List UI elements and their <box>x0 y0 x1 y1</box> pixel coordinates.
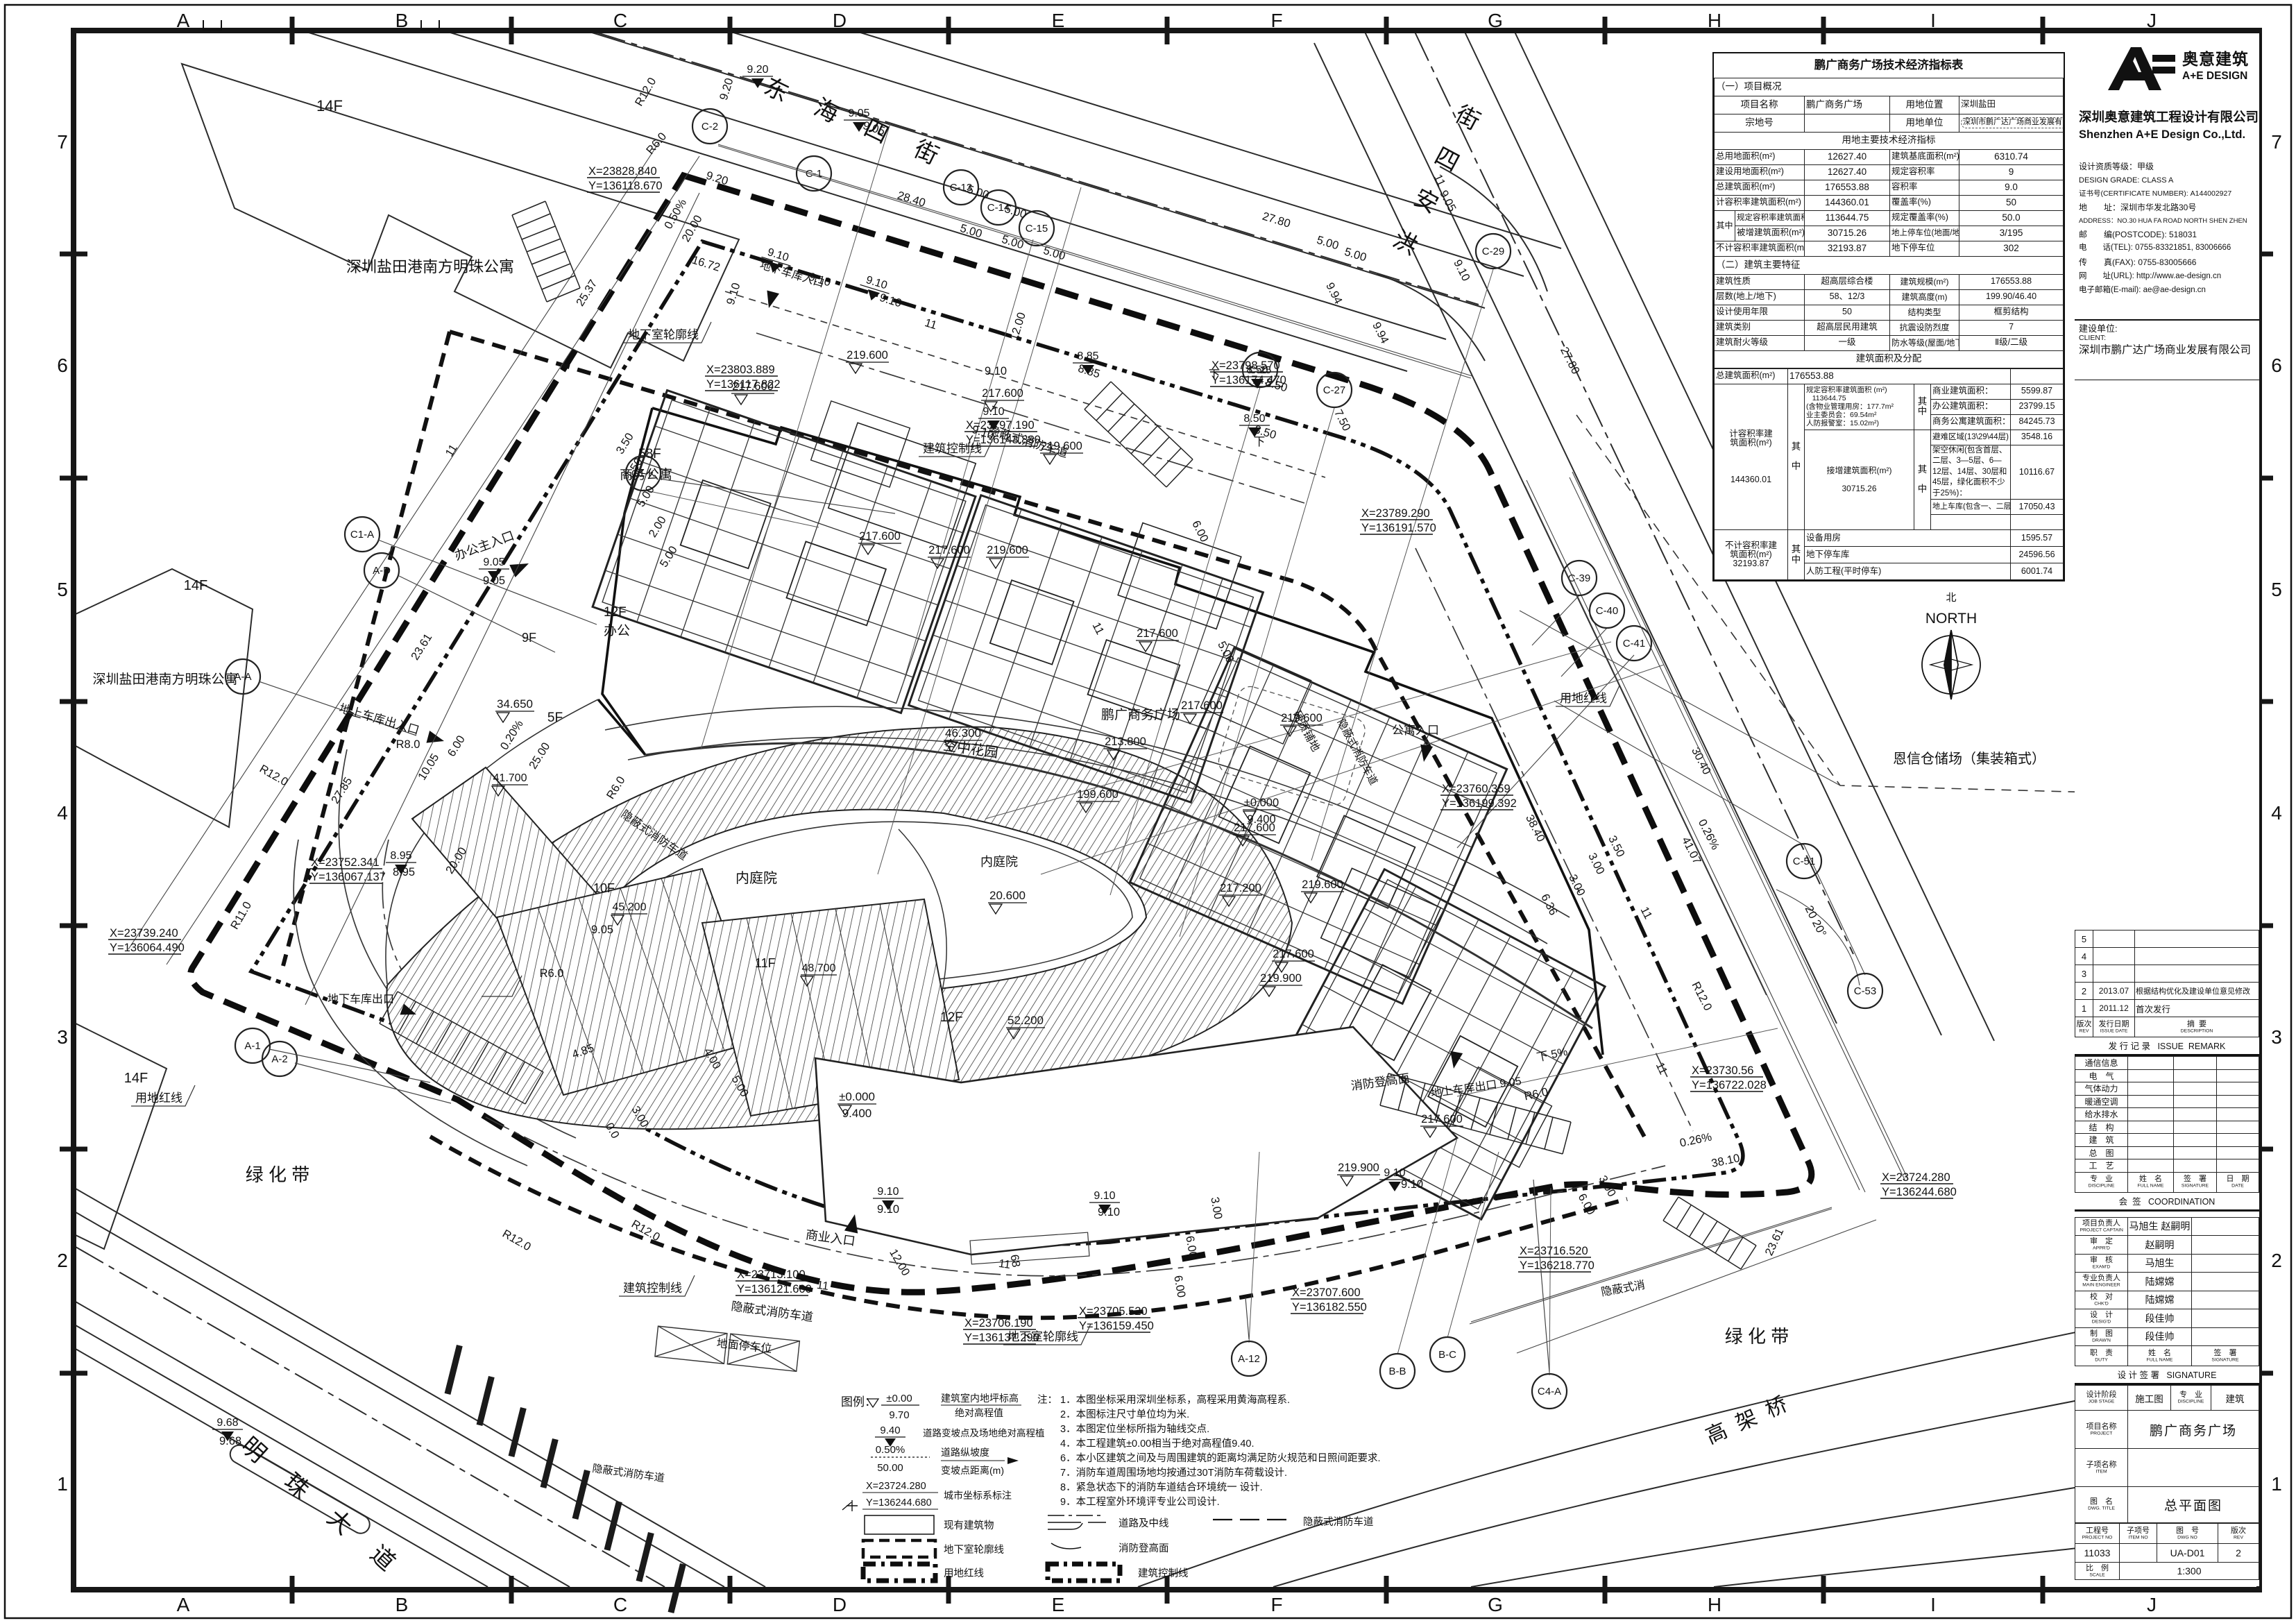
svg-text:C-53: C-53 <box>1854 985 1877 997</box>
svg-text:9.10: 9.10 <box>1094 1190 1115 1202</box>
svg-text:X=23713.100: X=23713.100 <box>737 1268 806 1281</box>
svg-text:14F: 14F <box>124 1071 148 1086</box>
svg-text:绝对高程值: 绝对高程值 <box>955 1407 1003 1418</box>
svg-text:217.600: 217.600 <box>1273 948 1314 960</box>
svg-text:9.400: 9.400 <box>1247 813 1275 826</box>
svg-text:9.05: 9.05 <box>848 108 869 119</box>
svg-text:C-27: C-27 <box>1323 384 1346 396</box>
svg-text:Y=136199.392: Y=136199.392 <box>1442 797 1517 810</box>
svg-text:6．本小区建筑之间及与周围建筑的距离均满足防火规范和日照间距: 6．本小区建筑之间及与周围建筑的距离均满足防火规范和日照间距要求. <box>1060 1452 1381 1464</box>
svg-text:2.00: 2.00 <box>647 514 669 540</box>
svg-text:6.00: 6.00 <box>1171 1275 1187 1299</box>
svg-text:219.900: 219.900 <box>1338 1162 1379 1174</box>
svg-text:25.00: 25.00 <box>527 740 552 772</box>
svg-text:I: I <box>1930 10 1936 31</box>
svg-text:1: 1 <box>57 1473 68 1495</box>
svg-text:6.00: 6.00 <box>445 733 468 759</box>
svg-text:R12.0: R12.0 <box>633 76 659 108</box>
svg-text:C-29: C-29 <box>1482 246 1505 257</box>
svg-text:3.00: 3.00 <box>1585 851 1607 876</box>
svg-text:34.650: 34.650 <box>497 697 533 711</box>
svg-text:R12.0: R12.0 <box>629 1218 662 1244</box>
svg-text:6: 6 <box>2271 355 2282 376</box>
svg-text:9.400: 9.400 <box>842 1107 872 1120</box>
svg-text:道路纵坡度: 道路纵坡度 <box>941 1447 989 1458</box>
svg-text:9F: 9F <box>522 631 536 645</box>
svg-text:建筑控制线: 建筑控制线 <box>1138 1567 1189 1579</box>
svg-text:隐蔽式消: 隐蔽式消 <box>1600 1279 1646 1299</box>
svg-text:9.05: 9.05 <box>1437 188 1459 214</box>
svg-text:8．紧急状态下的消防车道结合环境统一 设计.: 8．紧急状态下的消防车道结合环境统一 设计. <box>1060 1481 1263 1493</box>
svg-text:11: 11 <box>816 1279 829 1293</box>
svg-text:消防登高面: 消防登高面 <box>1119 1543 1169 1554</box>
svg-text:Y=136064.490: Y=136064.490 <box>110 942 185 954</box>
svg-text:45.200: 45.200 <box>613 901 647 913</box>
svg-text:R6.0: R6.0 <box>644 130 669 157</box>
svg-text:28.40: 28.40 <box>896 189 927 210</box>
svg-text:X=23716.520: X=23716.520 <box>1520 1245 1588 1257</box>
svg-text:内庭院: 内庭院 <box>980 855 1018 869</box>
svg-text:G: G <box>1488 1594 1503 1615</box>
svg-text:3．本图定位坐标所指为轴线交点.: 3．本图定位坐标所指为轴线交点. <box>1060 1422 1209 1435</box>
svg-text:6.00: 6.00 <box>1576 1191 1598 1217</box>
svg-text:地下车库出口: 地下车库出口 <box>328 993 394 1005</box>
svg-text:9.10: 9.10 <box>1451 257 1472 283</box>
svg-text:A-2: A-2 <box>271 1053 287 1065</box>
svg-text:下 5%: 下 5% <box>1536 1046 1569 1064</box>
svg-text:X=23803.889: X=23803.889 <box>706 364 775 376</box>
svg-text:X=23752.341: X=23752.341 <box>311 856 380 869</box>
svg-text:41.700: 41.700 <box>493 772 527 784</box>
svg-text:地下室轮廓线: 地下室轮廓线 <box>628 328 699 341</box>
svg-text:恩信仓储场（集装箱式）: 恩信仓储场（集装箱式） <box>1893 751 2046 767</box>
svg-text:46.300: 46.300 <box>945 726 981 740</box>
svg-text:F: F <box>1270 1594 1282 1615</box>
svg-text:11F: 11F <box>755 956 776 970</box>
svg-text:41.07: 41.07 <box>1679 835 1703 866</box>
svg-text:Y=136191.570: Y=136191.570 <box>1361 522 1436 534</box>
svg-text:9．本工程室外环境评专业公司设计.: 9．本工程室外环境评专业公司设计. <box>1060 1495 1220 1508</box>
svg-text:14F: 14F <box>316 97 343 114</box>
svg-text:±0.00: ±0.00 <box>886 1393 912 1404</box>
svg-text:R6.0: R6.0 <box>540 967 564 980</box>
svg-text:217.200: 217.200 <box>1220 882 1261 894</box>
svg-text:0.26%: 0.26% <box>1678 1130 1713 1149</box>
svg-text:X=23705.520: X=23705.520 <box>1079 1305 1148 1318</box>
svg-text:Y=136218.770: Y=136218.770 <box>1520 1259 1595 1272</box>
svg-text:桥: 桥 <box>1762 1393 1791 1422</box>
svg-text:C-15: C-15 <box>1026 223 1048 235</box>
svg-text:街: 街 <box>1451 101 1484 136</box>
svg-text:9.20: 9.20 <box>747 64 768 76</box>
svg-text:J: J <box>2147 1594 2157 1615</box>
svg-text:R12.0: R12.0 <box>500 1227 533 1254</box>
svg-text:四: 四 <box>1430 143 1463 178</box>
svg-text:深圳盐田港南方明珠公寓: 深圳盐田港南方明珠公寓 <box>92 672 237 687</box>
svg-text:1．本图坐标采用深圳坐标系，高程采用黄海高程系.: 1．本图坐标采用深圳坐标系，高程采用黄海高程系. <box>1060 1394 1290 1406</box>
svg-text:C-2: C-2 <box>701 121 718 133</box>
svg-text:隐蔽式消防车道: 隐蔽式消防车道 <box>591 1463 665 1484</box>
svg-text:11: 11 <box>443 442 460 459</box>
svg-text:Y=136244.680: Y=136244.680 <box>866 1497 932 1509</box>
svg-text:E: E <box>1052 10 1065 31</box>
svg-text:8.50: 8.50 <box>1243 413 1265 425</box>
svg-text:内庭院: 内庭院 <box>735 870 777 886</box>
svg-text:9.10: 9.10 <box>985 365 1007 377</box>
svg-text:公寓入口: 公寓入口 <box>1392 724 1439 737</box>
svg-text:5.00: 5.00 <box>658 544 680 570</box>
svg-text:奥意建筑: 奥意建筑 <box>2182 50 2249 68</box>
svg-text:高: 高 <box>1703 1419 1731 1448</box>
svg-text:C: C <box>613 1594 627 1615</box>
svg-text:9.10: 9.10 <box>877 1186 899 1198</box>
svg-text:变坡点距离(m): 变坡点距离(m) <box>941 1465 1004 1476</box>
svg-text:地面停车位: 地面停车位 <box>716 1337 772 1355</box>
svg-text:7．消防车道周围场地均按通过30T消防车荷载设计.: 7．消防车道周围场地均按通过30T消防车荷载设计. <box>1060 1467 1287 1479</box>
svg-text:Y=136118.670: Y=136118.670 <box>588 180 663 192</box>
svg-text:0.50%: 0.50% <box>876 1444 905 1456</box>
svg-text:217.600: 217.600 <box>1137 627 1178 640</box>
svg-text:6: 6 <box>57 355 68 376</box>
svg-text:27.85: 27.85 <box>329 775 355 806</box>
svg-text:2．本图标注尺寸单位均为米.: 2．本图标注尺寸单位均为米. <box>1060 1409 1189 1420</box>
svg-text:X=23789.290: X=23789.290 <box>1361 507 1430 520</box>
svg-text:Y=136067.137: Y=136067.137 <box>311 871 386 883</box>
svg-text:地下室轮廓线: 地下室轮廓线 <box>944 1544 1004 1556</box>
svg-text:10.05: 10.05 <box>416 751 441 783</box>
svg-text:219.900: 219.900 <box>1260 972 1302 985</box>
svg-text:洪: 洪 <box>1388 226 1422 261</box>
svg-text:绿 化 带: 绿 化 带 <box>1725 1326 1789 1347</box>
svg-text:北: 北 <box>1946 592 1956 604</box>
svg-text:219.600: 219.600 <box>847 349 888 362</box>
svg-text:现有建筑物: 现有建筑物 <box>944 1520 994 1531</box>
svg-text:217.600: 217.600 <box>928 544 970 556</box>
svg-text:3: 3 <box>2271 1026 2282 1048</box>
svg-text:217.600: 217.600 <box>1421 1113 1463 1125</box>
svg-text:隐蔽式消防车道: 隐蔽式消防车道 <box>1335 717 1379 788</box>
svg-text:C-51: C-51 <box>1793 856 1816 867</box>
svg-text:9.70: 9.70 <box>889 1409 909 1421</box>
svg-text:大: 大 <box>322 1504 357 1540</box>
svg-text:Shenzhen A+E Design Co.,Ltd.: Shenzhen A+E Design Co.,Ltd. <box>2079 128 2245 141</box>
svg-text:H: H <box>1708 1594 1721 1615</box>
svg-text:B: B <box>396 10 409 31</box>
svg-text:R6.0: R6.0 <box>604 774 628 801</box>
svg-text:Y=136182.550: Y=136182.550 <box>1292 1301 1367 1314</box>
svg-text:东: 东 <box>760 74 792 108</box>
svg-text:4．本工程建筑±0.00相当于绝对高程值9.40.: 4．本工程建筑±0.00相当于绝对高程值9.40. <box>1060 1438 1255 1450</box>
svg-text:D: D <box>833 1594 847 1615</box>
svg-text:道路变坡点及场地绝对高程植: 道路变坡点及场地绝对高程植 <box>923 1427 1045 1438</box>
svg-text:Y=136244.680: Y=136244.680 <box>1882 1186 1957 1198</box>
svg-text:7.50: 7.50 <box>1332 407 1353 433</box>
svg-text:道路及中线: 道路及中线 <box>1119 1518 1169 1529</box>
svg-text:F: F <box>1270 10 1282 31</box>
svg-text:G: G <box>1488 10 1503 31</box>
svg-text:9.10: 9.10 <box>724 282 743 307</box>
svg-text:B: B <box>396 1594 409 1615</box>
svg-text:J: J <box>2147 10 2157 31</box>
svg-text:建筑控制线: 建筑控制线 <box>623 1282 682 1295</box>
svg-text:4: 4 <box>2271 802 2282 824</box>
svg-text:9.10: 9.10 <box>1384 1167 1405 1179</box>
svg-text:鹏广商务广场: 鹏广商务广场 <box>1101 707 1180 722</box>
svg-text:X=23724.280: X=23724.280 <box>866 1481 926 1492</box>
svg-text:道: 道 <box>365 1540 400 1576</box>
svg-text:E: E <box>1052 1594 1065 1615</box>
svg-text:X=23828.840: X=23828.840 <box>588 165 657 178</box>
svg-text:9.40: 9.40 <box>880 1425 900 1436</box>
svg-text:11: 11 <box>1090 620 1107 636</box>
svg-text:199.600: 199.600 <box>1077 788 1119 801</box>
svg-text:C-40: C-40 <box>1596 605 1619 617</box>
svg-text:A-A: A-A <box>234 671 251 683</box>
svg-text:C4-A: C4-A <box>1538 1386 1561 1397</box>
svg-text:52.200: 52.200 <box>1007 1014 1044 1027</box>
svg-text:10F: 10F <box>593 881 615 895</box>
svg-text:217.600: 217.600 <box>1181 699 1223 712</box>
svg-text:X=23760.359: X=23760.359 <box>1442 783 1511 795</box>
svg-text:3: 3 <box>57 1026 68 1048</box>
svg-text:±0.000: ±0.000 <box>839 1090 875 1103</box>
svg-text:NORTH: NORTH <box>1925 611 1977 627</box>
svg-text:R12.0: R12.0 <box>257 763 290 789</box>
svg-text:安: 安 <box>1409 185 1443 219</box>
svg-text:11: 11 <box>1653 1060 1670 1076</box>
svg-text:A: A <box>177 10 190 31</box>
svg-text:7: 7 <box>2271 131 2282 153</box>
svg-text:4: 4 <box>57 802 68 824</box>
svg-text:A-1: A-1 <box>244 1040 260 1052</box>
svg-text:地上车库出口 9.05: 地上车库出口 9.05 <box>1430 1075 1522 1100</box>
svg-text:深圳盐田港南方明珠公寓: 深圳盐田港南方明珠公寓 <box>346 258 514 275</box>
svg-text:50.00: 50.00 <box>877 1462 903 1474</box>
svg-text:12F: 12F <box>940 1010 963 1025</box>
svg-text:38.10: 38.10 <box>1710 1152 1741 1170</box>
svg-text:5: 5 <box>2271 579 2282 600</box>
svg-text:B-B: B-B <box>1388 1366 1406 1377</box>
svg-text:217.600: 217.600 <box>732 380 774 393</box>
svg-text:隐蔽式消防车道: 隐蔽式消防车道 <box>731 1300 814 1324</box>
svg-text:14F: 14F <box>184 578 207 593</box>
svg-text:8.95: 8.95 <box>390 850 411 862</box>
svg-text:8.85: 8.85 <box>1077 350 1098 362</box>
svg-text:隐蔽式消防车道: 隐蔽式消防车道 <box>1303 1516 1374 1528</box>
svg-text:48.700: 48.700 <box>802 962 836 974</box>
svg-text:C1-A: C1-A <box>350 529 374 541</box>
svg-text:11: 11 <box>1638 905 1655 921</box>
svg-text:2: 2 <box>2271 1250 2282 1271</box>
svg-text:7: 7 <box>57 131 68 153</box>
svg-text:R8.0: R8.0 <box>396 738 420 751</box>
svg-text:Y=136121.600: Y=136121.600 <box>737 1283 812 1295</box>
svg-text:A+E DESIGN: A+E DESIGN <box>2182 70 2247 82</box>
svg-text:217.600: 217.600 <box>982 387 1023 400</box>
svg-text:1: 1 <box>2271 1473 2282 1495</box>
svg-text:深圳奥意建筑工程设计有限公司: 深圳奥意建筑工程设计有限公司 <box>2079 110 2259 124</box>
svg-text:用地红线: 用地红线 <box>135 1091 182 1105</box>
svg-text:68: 68 <box>1007 1254 1022 1268</box>
svg-text:9.10: 9.10 <box>1401 1178 1423 1191</box>
svg-text:架: 架 <box>1733 1406 1761 1435</box>
svg-text:23.61: 23.61 <box>1763 1226 1787 1257</box>
svg-text:绿 化 带: 绿 化 带 <box>246 1164 309 1185</box>
svg-text:下: 下 <box>1209 368 1221 381</box>
svg-text:9.05: 9.05 <box>483 556 504 568</box>
svg-text:地下室轮廓线: 地下室轮廓线 <box>1007 1330 1078 1343</box>
svg-text:27.80: 27.80 <box>1261 210 1292 230</box>
svg-text:5: 5 <box>57 579 68 600</box>
svg-text:11: 11 <box>1431 172 1448 188</box>
svg-text:5.00: 5.00 <box>1343 246 1368 264</box>
svg-text:注：: 注： <box>1037 1394 1057 1406</box>
svg-text:27.80: 27.80 <box>1558 345 1582 376</box>
svg-text:11: 11 <box>924 316 939 332</box>
svg-text:0.20%: 0.20% <box>498 717 526 751</box>
svg-text:8.50: 8.50 <box>1246 364 1268 376</box>
svg-text:X=23724.280: X=23724.280 <box>1882 1171 1950 1184</box>
svg-text:9.94: 9.94 <box>1370 320 1391 346</box>
svg-text:9.05: 9.05 <box>591 924 613 936</box>
svg-text:5F: 5F <box>547 711 563 725</box>
svg-text:建筑控制线: 建筑控制线 <box>923 442 982 455</box>
svg-text:6.36: 6.36 <box>1538 892 1560 917</box>
svg-text:58F: 58F <box>638 447 661 461</box>
svg-text:9.10: 9.10 <box>878 291 903 310</box>
svg-text:图例：: 图例： <box>841 1395 876 1409</box>
svg-text:H: H <box>1708 10 1721 31</box>
svg-text:Y=136722.028: Y=136722.028 <box>1692 1079 1767 1091</box>
svg-text:办公: 办公 <box>604 623 630 638</box>
svg-text:用地红线: 用地红线 <box>1560 692 1607 705</box>
svg-text:20.00: 20.00 <box>680 213 705 244</box>
svg-text:A-D: A-D <box>373 565 391 577</box>
svg-text:C: C <box>613 10 627 31</box>
svg-text:16.72: 16.72 <box>690 254 722 274</box>
svg-text:5.00: 5.00 <box>1003 203 1028 221</box>
svg-text:X=23730.56: X=23730.56 <box>1692 1064 1753 1077</box>
svg-text:D: D <box>833 10 847 31</box>
svg-text:9.68: 9.68 <box>216 1417 238 1429</box>
svg-text:9.20: 9.20 <box>704 169 729 188</box>
svg-text:217.600: 217.600 <box>859 530 901 543</box>
svg-text:23.61: 23.61 <box>409 631 434 663</box>
svg-text:C-41: C-41 <box>1623 638 1646 649</box>
svg-text:20.600: 20.600 <box>989 889 1026 902</box>
svg-text:I: I <box>1930 1594 1936 1615</box>
svg-text:珠: 珠 <box>279 1468 314 1504</box>
svg-text:下: 下 <box>1254 436 1266 448</box>
svg-text:9.20: 9.20 <box>717 77 736 102</box>
svg-text:219.600: 219.600 <box>1302 878 1343 891</box>
svg-text:12F: 12F <box>604 605 627 620</box>
svg-text:城市坐标系标注: 城市坐标系标注 <box>944 1490 1012 1501</box>
svg-text:213.800: 213.800 <box>1105 736 1146 748</box>
svg-text:0.26%: 0.26% <box>1696 817 1721 852</box>
svg-text:219.600: 219.600 <box>1281 712 1323 724</box>
svg-text:9.10: 9.10 <box>865 274 889 291</box>
svg-text:2: 2 <box>57 1250 68 1271</box>
svg-text:5.00: 5.00 <box>1315 234 1340 253</box>
svg-text:R12.0: R12.0 <box>1689 980 1714 1012</box>
svg-text:X=23707.600: X=23707.600 <box>1292 1286 1361 1299</box>
svg-text:X=23706.190: X=23706.190 <box>964 1317 1033 1329</box>
svg-text:A-12: A-12 <box>1238 1353 1260 1365</box>
svg-text:建筑室内地坪标高: 建筑室内地坪标高 <box>941 1393 1019 1404</box>
svg-text:±0.000: ±0.000 <box>1244 797 1279 809</box>
svg-text:X=23739.240: X=23739.240 <box>110 927 178 940</box>
svg-text:219.600: 219.600 <box>987 544 1028 556</box>
svg-text:街: 街 <box>910 136 942 170</box>
svg-text:A: A <box>177 1594 190 1615</box>
svg-text:B-C: B-C <box>1438 1349 1456 1361</box>
svg-text:5.00: 5.00 <box>965 183 990 202</box>
svg-text:219.600: 219.600 <box>1041 440 1082 452</box>
svg-text:3.50: 3.50 <box>614 431 636 457</box>
